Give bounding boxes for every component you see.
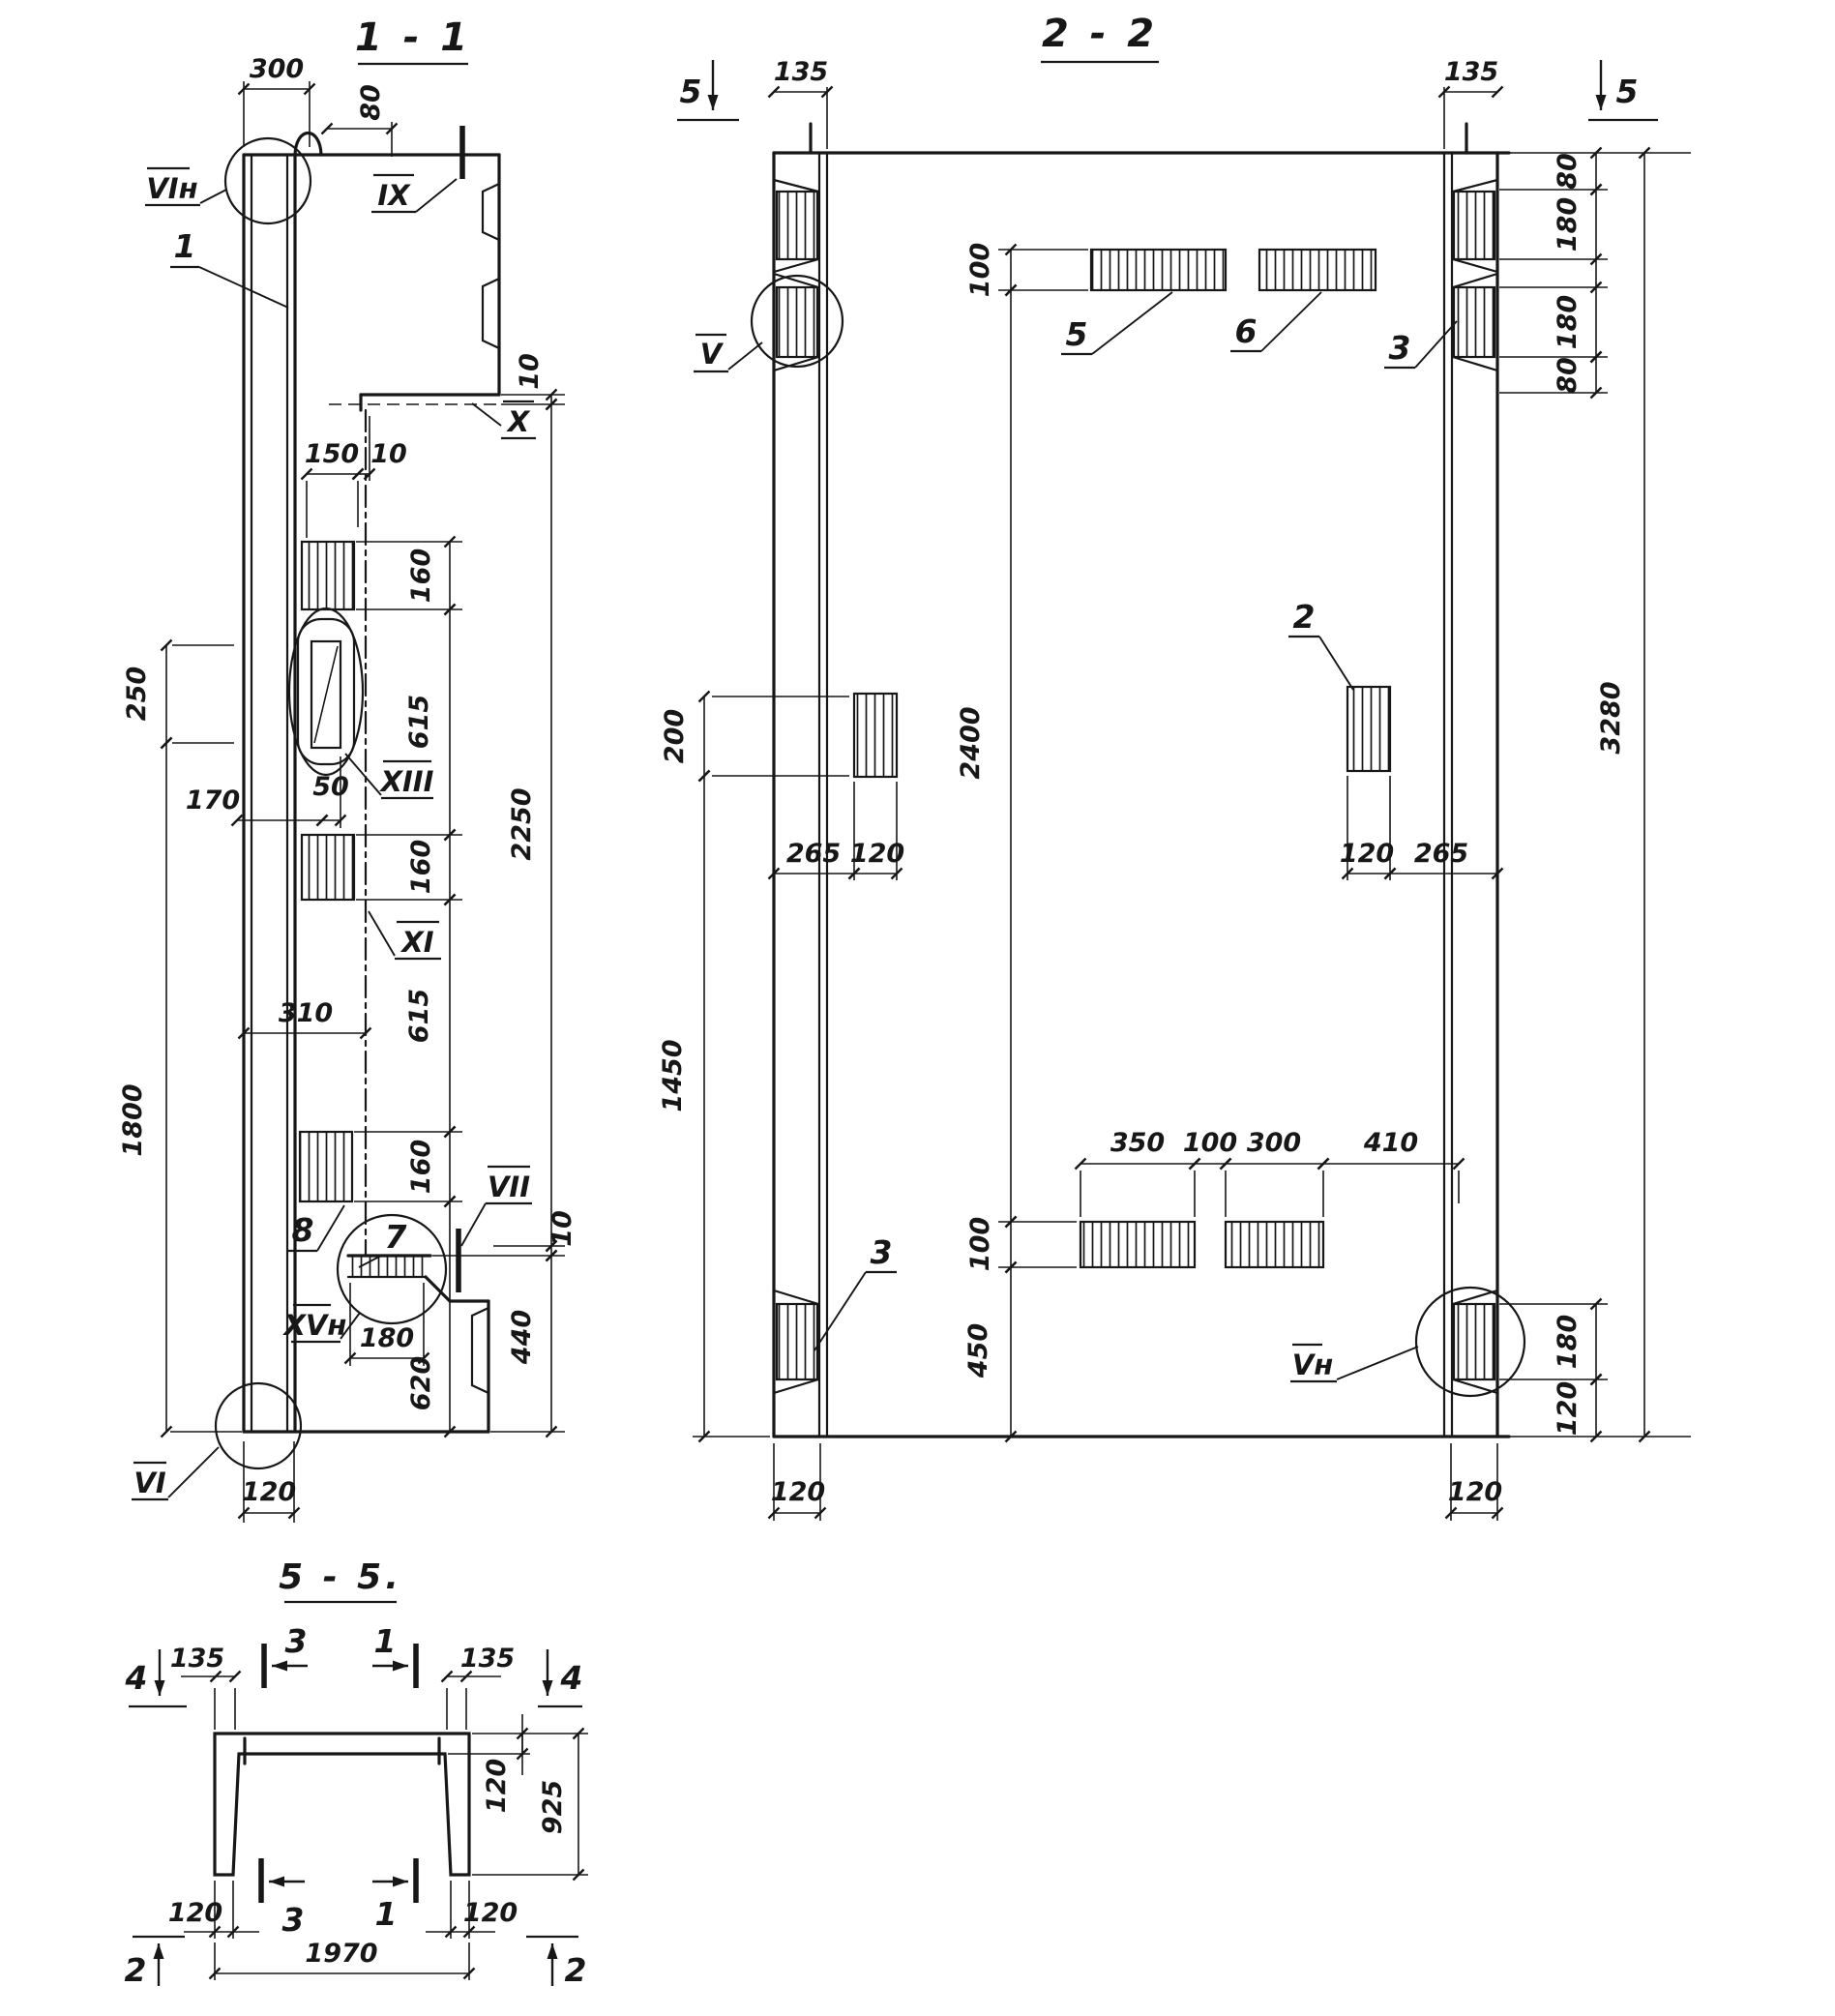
dim-10: 10 [515,353,545,390]
dim-120: 120 [850,839,904,869]
dim-265: 265 [786,839,841,869]
dim-450: 450 [963,1323,993,1379]
rib-hatch [1454,192,1495,259]
embedded-plate-6 [1259,250,1376,290]
callout-6: 6 [1235,312,1258,350]
rib-hatch [777,192,817,259]
engineering-drawing: 1 - 1 [0,0,1835,2016]
detail-circle-vin [225,138,311,223]
dim-80: 80 [356,84,386,121]
dim-100: 100 [965,1217,995,1271]
blueprint-page: 1 - 1 [0,0,1835,2016]
rib-hatch [1454,287,1495,357]
cut-label-4: 4 [560,1659,583,1697]
dim-135: 135 [1444,57,1498,87]
dim-120: 120 [1553,1381,1583,1436]
callout-7: 7 [385,1218,407,1256]
edge-notch [472,1308,488,1393]
embedded-part [302,542,354,609]
cut-label-5: 5 [680,73,702,110]
embedded-plate [854,694,897,777]
dim-120: 120 [242,1477,296,1507]
dim-120: 120 [771,1477,825,1507]
section-1-1-title: 1 - 1 [355,15,471,60]
dim-160: 160 [406,548,436,603]
callout-8: 8 [292,1211,314,1249]
mark-ix: IX [377,179,411,212]
dim-100: 100 [1183,1128,1237,1158]
dim-10: 10 [370,439,407,469]
dim-10: 10 [548,1210,577,1247]
dim-615: 615 [404,695,434,749]
mark-vn: Vн [1292,1349,1333,1381]
rib-hatch [1454,1304,1495,1379]
callout-3: 3 [1389,329,1411,367]
dim-120: 120 [168,1898,222,1928]
mark-xiii: XIII [379,765,434,798]
channel-outline [215,1734,469,1875]
dim-620: 620 [406,1356,436,1410]
callout-5: 5 [1066,315,1088,353]
dim-180: 180 [1553,295,1583,349]
dim-160: 160 [406,840,436,894]
dim-135: 135 [170,1644,224,1674]
dim-2400: 2400 [956,706,986,779]
dim-300: 300 [250,54,304,84]
dim-80: 80 [1553,153,1583,190]
dim-100: 100 [965,243,995,297]
embedded-plate [1226,1222,1323,1267]
dim-120: 120 [463,1898,518,1928]
section-2-2-title: 2 - 2 [1042,12,1158,56]
section-2-2: 2 - 2 [658,12,1691,1521]
callout-2: 2 [1293,598,1316,636]
mark-v: V [700,338,725,371]
dim-135: 135 [774,57,828,87]
section-5-5: 5 - 5. 4 4 3 1 3 1 2 2 [125,1557,588,1989]
cut-label-3: 3 [282,1901,305,1939]
dim-615: 615 [404,989,434,1043]
dim-1970: 1970 [305,1939,377,1969]
embedded-part [300,1132,352,1201]
embedded-plate [1080,1222,1195,1267]
dim-180: 180 [1553,197,1583,252]
dim-200: 200 [660,709,690,763]
dim-3280: 3280 [1596,681,1626,754]
dim-120: 120 [1448,1477,1502,1507]
mark-vin: VIн [146,172,197,205]
embedded-part [302,835,354,900]
cut-label-2: 2 [565,1951,587,1989]
edge-notch [483,184,499,240]
dim-150: 150 [305,439,359,469]
dim-350: 350 [1110,1128,1165,1158]
cut-label-1: 1 [375,1895,398,1933]
callout-3: 3 [871,1233,893,1271]
cut-label-3: 3 [285,1622,308,1660]
embedded-plate-5 [1091,250,1226,290]
section-5-5-title: 5 - 5. [279,1557,402,1597]
dim-440: 440 [507,1310,537,1365]
cut-label-2: 2 [125,1951,147,1989]
mark-xvn: XVн [282,1309,347,1342]
dim-410: 410 [1363,1128,1418,1158]
callout-1: 1 [174,227,196,265]
dim-1800: 1800 [118,1083,148,1156]
rib-hatch [777,287,817,357]
dim-50: 50 [312,772,349,802]
dim-180: 180 [360,1323,414,1353]
mark-xi: XI [400,926,433,959]
dim-80: 80 [1553,357,1583,394]
dim-2250: 2250 [507,787,537,860]
dim-925: 925 [538,1780,568,1834]
section-1-1: 1 - 1 [118,15,577,1523]
mark-x: X [506,405,531,438]
cut-label-4: 4 [125,1659,148,1697]
mark-vi: VI [133,1467,165,1499]
dim-1450: 1450 [658,1039,688,1112]
dim-310: 310 [279,998,333,1028]
dim-300: 300 [1247,1128,1301,1158]
cut-label-1: 1 [374,1622,397,1660]
rib-hatch [777,1304,817,1379]
embedded-plate-2 [1347,687,1390,771]
dim-180: 180 [1553,1315,1583,1369]
dim-265: 265 [1414,839,1468,869]
dim-135: 135 [460,1644,515,1674]
dim-250: 250 [122,667,152,721]
mark-vii: VII [488,1171,530,1203]
dim-120: 120 [482,1759,512,1813]
dim-170: 170 [186,786,240,815]
dim-120: 120 [1340,839,1394,869]
dim-160: 160 [406,1140,436,1194]
edge-notch [483,279,499,348]
cut-label-5: 5 [1616,73,1639,110]
